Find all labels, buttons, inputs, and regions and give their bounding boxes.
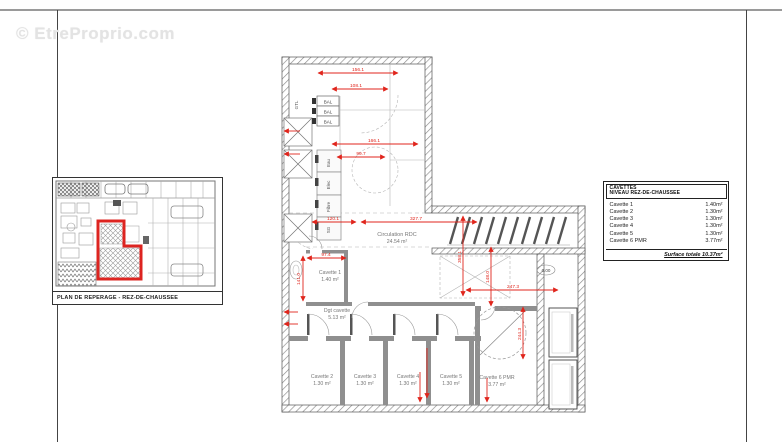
sheet-frame-right	[746, 10, 747, 442]
svg-text:5.13 m²: 5.13 m²	[328, 315, 346, 321]
legend-row-label: Cavette 2	[610, 209, 634, 216]
mailbox-stack: BAL BAL BAL	[312, 96, 339, 126]
bal-label: BAL	[324, 120, 333, 125]
room-label-circulation: Circulation RDC 24.54 m²	[377, 232, 416, 245]
legend-row: Cavette 5 1.30m²	[610, 231, 723, 238]
gtl-label: GTL	[294, 100, 299, 109]
svg-text:Cavette 6 PMR: Cavette 6 PMR	[479, 375, 514, 381]
dim-label: 99.7	[356, 151, 366, 157]
utility-compartments: Eau Elec Fibre SG	[315, 150, 341, 240]
legend-rows: Cavette 1 1.40m² Cavette 2 1.30m² Cavett…	[606, 199, 727, 247]
level-label: 0.00	[542, 268, 551, 273]
dim-label: 97.4	[321, 252, 331, 258]
svg-text:1.30 m²: 1.30 m²	[313, 381, 331, 387]
dim-label: 156.1	[352, 67, 364, 73]
legend-row: Cavette 4 1.30m²	[610, 223, 723, 230]
svg-text:Cavette 2: Cavette 2	[311, 374, 333, 380]
fibre-label: Fibre	[326, 201, 331, 212]
svg-text:24.54 m²: 24.54 m²	[387, 239, 408, 245]
legend-header: CAVETTES NIVEAU REZ-DE-CHAUSSEE	[606, 184, 727, 199]
svg-text:1.40 m²: 1.40 m²	[321, 277, 339, 283]
overview-drawing	[53, 178, 219, 290]
legend-row: Cavette 3 1.30m²	[610, 216, 723, 223]
room-label-cavette4: Cavette 4 1.30 m²	[397, 374, 419, 387]
legend-total: Surface totale 10.37m²	[606, 249, 727, 259]
legend-row-area: 1.40m²	[705, 202, 722, 209]
dim-label: 358.1	[457, 251, 463, 263]
legend-table: CAVETTES NIVEAU REZ-DE-CHAUSSEE Cavette …	[603, 181, 729, 261]
legend-row-label: Cavette 3	[610, 216, 634, 223]
sg-label: SG	[326, 226, 331, 233]
room-label-cavette1: Cavette 1 1.40 m²	[319, 270, 341, 283]
dim-label: 148.0	[485, 271, 491, 283]
legend-row-label: Cavette 1	[610, 202, 634, 209]
svg-text:3.77 m²: 3.77 m²	[488, 382, 506, 388]
legend-row-area: 3.77m²	[705, 238, 722, 245]
room-label-cavette2: Cavette 2 1.30 m²	[311, 374, 333, 387]
dim-label: 244.3	[517, 328, 523, 340]
dim-label: 327.7	[410, 216, 422, 222]
legend-row: Cavette 6 PMR 3.77m²	[610, 238, 723, 245]
dim-label: 247.3	[507, 284, 519, 290]
legend-row-label: Cavette 5	[610, 231, 634, 238]
overview-caption: PLAN DE REPERAGE - REZ-DE-CHAUSSEE	[53, 291, 222, 304]
legend-title-line2: NIVEAU REZ-DE-CHAUSSEE	[610, 191, 723, 197]
dim-label: 108.1	[350, 83, 362, 89]
svg-text:1.30 m²: 1.30 m²	[356, 381, 374, 387]
legend-row-label: Cavette 6 PMR	[610, 238, 647, 245]
legend-row-area: 1.30m²	[705, 216, 722, 223]
main-floorplan: BAL BAL BAL GTL Eau Elec Fibre SG	[270, 50, 590, 425]
sheet-frame-top	[0, 9, 782, 11]
floorplan-sheet: { "watermark": "© EtreProprio.com", "ove…	[0, 0, 782, 442]
legend-row-label: Cavette 4	[610, 223, 634, 230]
legend-row-area: 1.30m²	[705, 209, 722, 216]
svg-text:Cavette 1: Cavette 1	[319, 270, 341, 276]
svg-text:Dgt cavette: Dgt cavette	[324, 308, 350, 314]
svg-text:Cavette 3: Cavette 3	[354, 374, 376, 380]
door-openings	[308, 249, 495, 343]
bike-rack	[450, 217, 566, 244]
eau-label: Eau	[326, 159, 331, 168]
legend-row-area: 1.30m²	[705, 223, 722, 230]
svg-text:Circulation RDC: Circulation RDC	[377, 232, 416, 238]
dim-label: 141.0	[296, 273, 302, 285]
legend-row: Cavette 2 1.30m²	[610, 209, 723, 216]
svg-text:1.30 m²: 1.30 m²	[442, 381, 460, 387]
svg-text:Cavette 5: Cavette 5	[440, 374, 462, 380]
room-label-cavette6: Cavette 6 PMR 3.77 m²	[479, 375, 514, 388]
storage-lockers	[549, 308, 577, 409]
dim-label: 166.1	[368, 138, 380, 144]
dim-label: 120.1	[327, 216, 339, 222]
legend-row: Cavette 1 1.40m²	[610, 202, 723, 209]
bal-label: BAL	[324, 100, 333, 105]
watermark: © EtreProprio.com	[16, 24, 175, 44]
room-label-cavette3: Cavette 3 1.30 m²	[354, 374, 376, 387]
svg-text:1.30 m²: 1.30 m²	[399, 381, 417, 387]
room-label-cavette5: Cavette 5 1.30 m²	[440, 374, 462, 387]
svg-text:Cavette 4: Cavette 4	[397, 374, 419, 380]
legend-row-area: 1.30m²	[705, 231, 722, 238]
room-label-dgt: Dgt cavette 5.13 m²	[324, 308, 350, 321]
bal-label: BAL	[324, 110, 333, 115]
elec-label: Elec	[326, 180, 331, 190]
overview-locator-plan: PLAN DE REPERAGE - REZ-DE-CHAUSSEE	[52, 177, 223, 305]
